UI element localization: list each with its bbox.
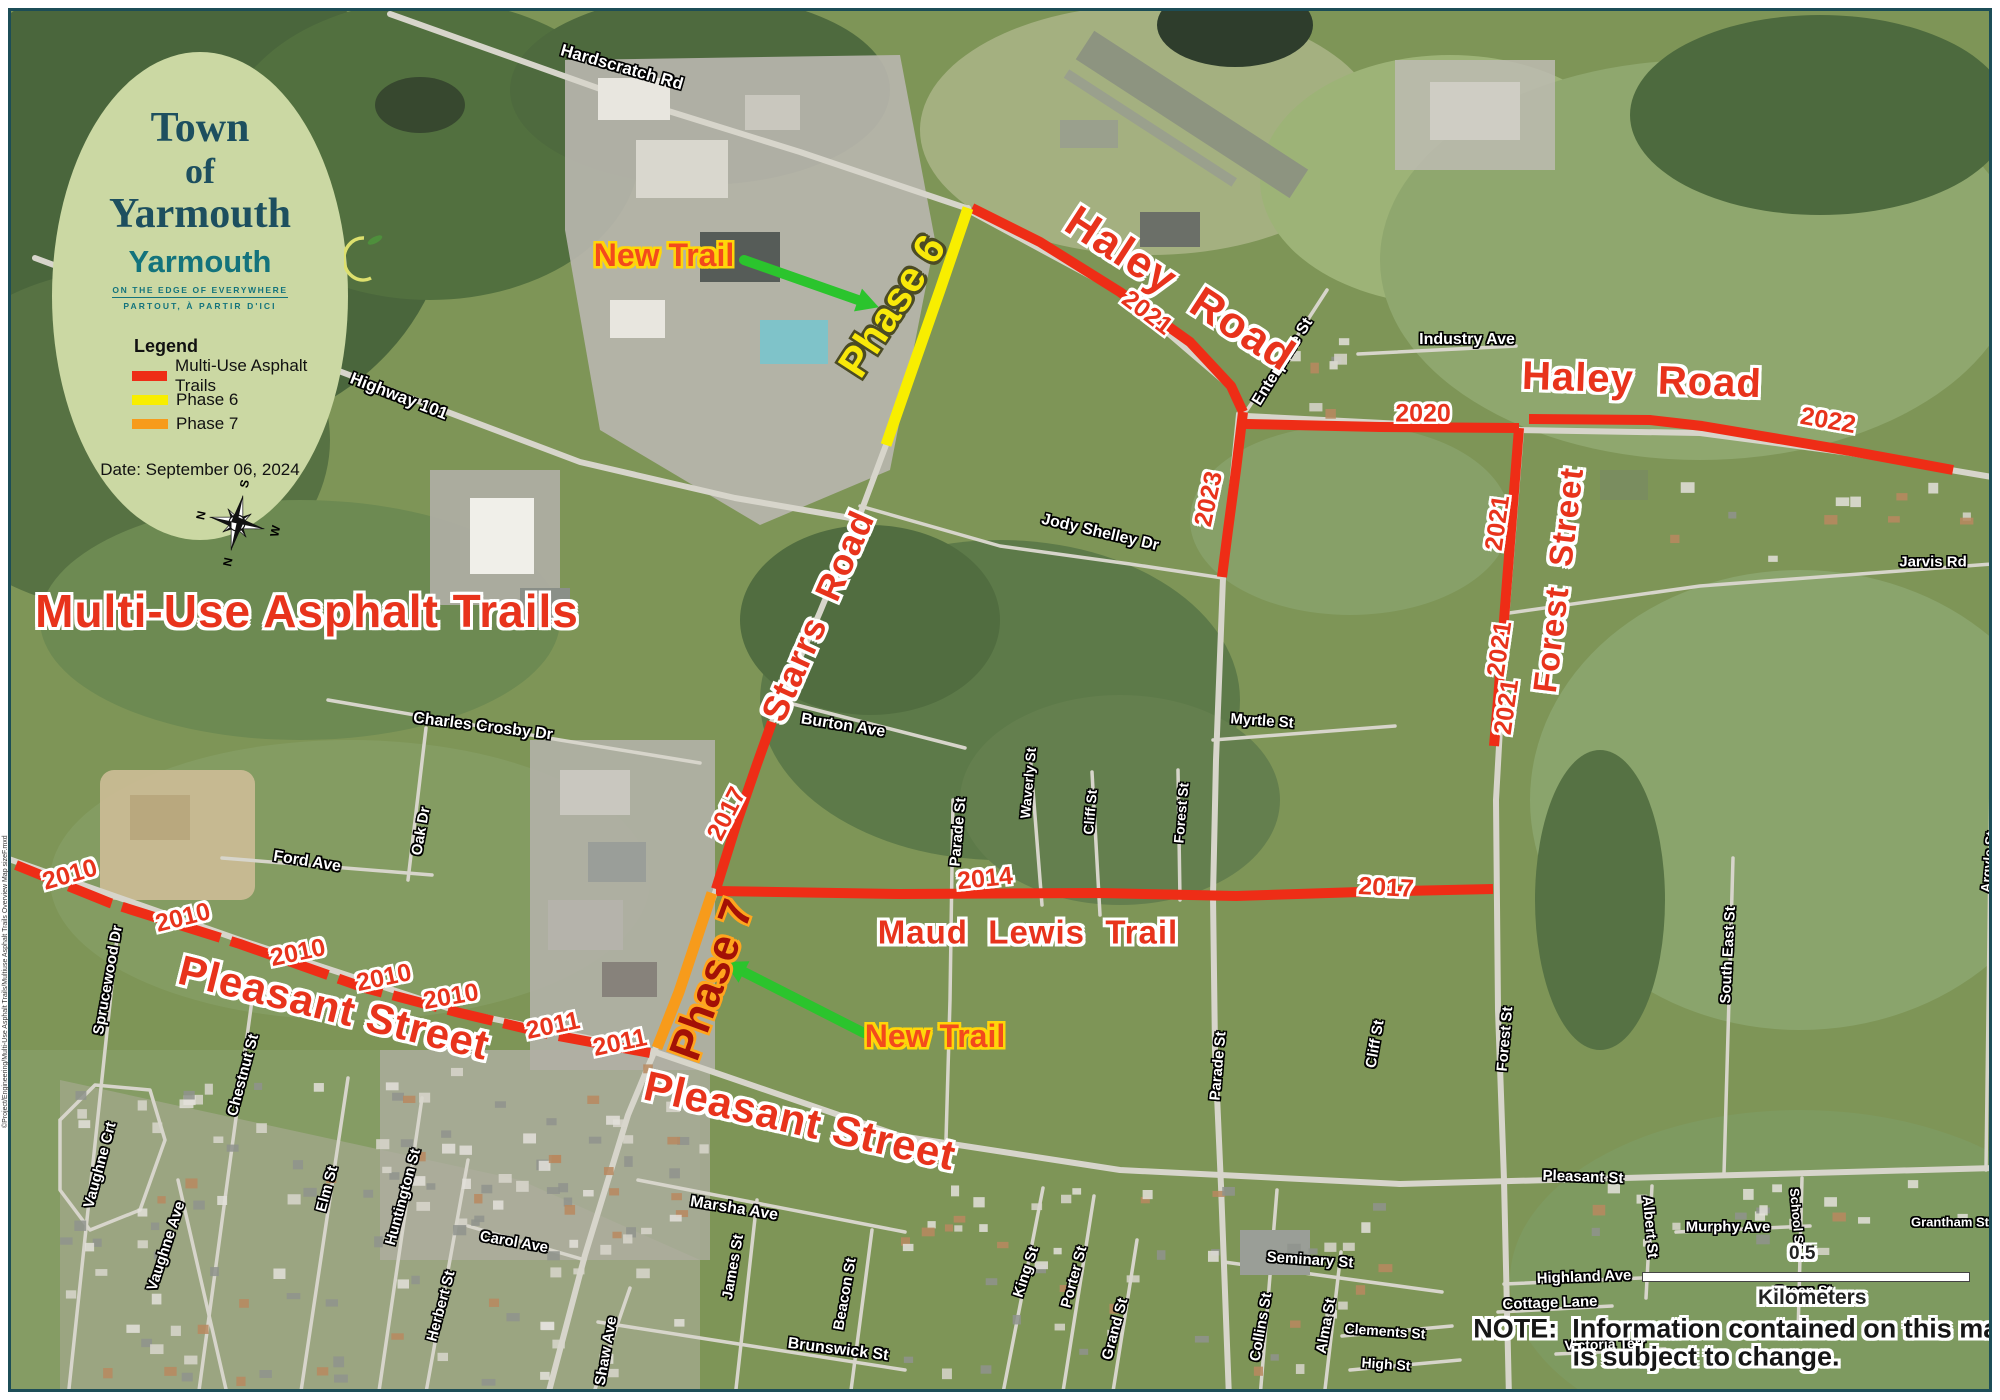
legend-item: Multi-Use Asphalt Trails xyxy=(132,364,348,388)
year-label: 2010 xyxy=(354,960,414,996)
street-label: Industry Ave xyxy=(1419,332,1515,348)
legend-swatch xyxy=(132,395,168,405)
street-label: Collins St xyxy=(1248,1292,1275,1363)
big-red-label: Starrs Road xyxy=(756,505,881,726)
legend-items: Multi-Use Asphalt TrailsPhase 6Phase 7 xyxy=(132,364,348,436)
phase7-label: Phase 7 xyxy=(663,894,761,1065)
legend-item-label: Phase 7 xyxy=(176,414,238,434)
newtrail-label: New Trail xyxy=(865,1020,1006,1052)
scale-bar xyxy=(1642,1272,1970,1282)
yarmouth-trails-map-page: { "legend_card": { "title_line1": "Town"… xyxy=(0,0,2000,1400)
yarmouth-logo: Yarmouth ON THE EDGE OF EVERYWHERE PARTO… xyxy=(52,244,348,314)
legend-swatch xyxy=(132,419,168,429)
legend-item: Phase 7 xyxy=(132,412,348,436)
compass-s: S xyxy=(237,478,252,489)
year-label: 2020 xyxy=(1395,402,1451,427)
legend-card: Town of Yarmouth Yarmouth ON THE EDGE OF… xyxy=(52,52,348,540)
street-label: Highway 101 xyxy=(348,370,450,423)
year-label: 2010 xyxy=(40,855,100,894)
card-title-line3: Yarmouth xyxy=(52,190,348,238)
street-label: Vaughne Ave xyxy=(144,1199,187,1292)
street-label: Pleasant St xyxy=(1542,1168,1623,1186)
year-label: 2011 xyxy=(524,1008,582,1044)
street-label: High St xyxy=(1361,1355,1411,1372)
year-label: 2022 xyxy=(1798,404,1857,438)
big-red-label: Haley Road xyxy=(1521,356,1762,404)
legend-swatch xyxy=(132,371,167,381)
compass-n2: N xyxy=(220,556,235,567)
street-label: Ford Ave xyxy=(272,849,342,875)
logo-tagline-en: ON THE EDGE OF EVERYWHERE xyxy=(112,285,287,298)
big-red-label: Multi-Use Asphalt Trails xyxy=(35,588,579,634)
street-label: Burton Ave xyxy=(800,711,887,740)
street-label: Grand St xyxy=(1100,1296,1131,1361)
street-label: Cliff St xyxy=(1363,1019,1386,1069)
street-label: Charles Crosby Dr xyxy=(412,710,553,743)
street-label: Herbert St xyxy=(424,1269,457,1343)
street-label: Myrtle St xyxy=(1230,711,1294,730)
phase6-label: Phase 6 xyxy=(831,228,953,384)
street-label: Grantham St xyxy=(1911,1216,1989,1229)
street-label: Seminary St xyxy=(1266,1249,1354,1270)
compass-w: W xyxy=(267,523,283,538)
year-label: 2010 xyxy=(268,935,328,971)
street-label: Jarvis Rd xyxy=(1899,555,1967,570)
compass-rose-icon: N S W N xyxy=(182,468,292,578)
card-title-line1: Town xyxy=(52,104,348,152)
year-label: 2017 xyxy=(1358,874,1415,902)
street-label: Vaughne Crt xyxy=(81,1120,118,1209)
year-label: 2010 xyxy=(153,899,213,937)
street-label: Sprucewood Dr xyxy=(91,924,125,1036)
logo-wordmark: Yarmouth xyxy=(129,244,272,279)
note-line2: is subject to change. xyxy=(1572,1342,1839,1373)
street-label: Huntington St xyxy=(383,1147,423,1247)
street-label: Cottage Lane xyxy=(1502,1294,1597,1312)
street-label: Cliff St xyxy=(1081,789,1099,835)
street-label: Porter St xyxy=(1059,1244,1090,1309)
street-label: Beacon St xyxy=(831,1257,859,1332)
street-label: James St xyxy=(720,1233,746,1300)
compass-n: N xyxy=(193,510,208,521)
street-label: Clements St xyxy=(1344,1321,1426,1341)
card-title-line2: of xyxy=(52,150,348,192)
street-label: School St xyxy=(1788,1188,1806,1249)
file-path-credit: ©Project/Engineering/Multi-Use Asphalt T… xyxy=(2,835,9,1128)
year-label: 2023 xyxy=(1191,469,1227,529)
street-label: King St xyxy=(1011,1245,1041,1300)
street-label: Marsha Ave xyxy=(689,1194,779,1224)
street-label: Brunswick St xyxy=(787,1336,890,1364)
scale-unit: Kilometers xyxy=(1758,1286,1867,1310)
legend-item-label: Phase 6 xyxy=(176,390,238,410)
logo-tagline-fr: PARTOUT, À PARTIR D'ICI xyxy=(52,301,348,311)
street-label: Forest St xyxy=(1495,1006,1516,1072)
newtrail-label: New Trail xyxy=(594,239,735,271)
big-red-label: Haley Road xyxy=(1058,199,1302,379)
street-label: Hardscratch Rd xyxy=(559,41,685,92)
year-label: 2017 xyxy=(703,784,751,845)
street-label: Jody Shelley Dr xyxy=(1040,512,1161,555)
street-label: Alma St xyxy=(1314,1297,1338,1355)
street-label: Highland Ave xyxy=(1536,1268,1631,1286)
legend-title: Legend xyxy=(134,336,198,357)
note-line1: NOTE: Information contained on this map xyxy=(1473,1314,2000,1345)
year-label: 2021 xyxy=(1491,678,1523,737)
street-label: Forest St xyxy=(1171,782,1190,844)
street-label: Waverly St xyxy=(1018,747,1038,819)
big-red-label: Forest Street xyxy=(1528,465,1588,694)
street-label: Murphy Ave xyxy=(1686,1220,1771,1235)
big-red-label: Pleasant Street xyxy=(640,1065,960,1178)
street-label: Carol Ave xyxy=(479,1229,549,1256)
year-label: 2014 xyxy=(956,864,1014,895)
leaf-icon xyxy=(344,234,386,286)
street-label: Parade St xyxy=(948,797,969,867)
street-label: Oak Dr xyxy=(409,805,432,856)
street-label: Elm St xyxy=(314,1165,341,1214)
big-red-label: Maud Lewis Trail xyxy=(878,916,1178,949)
street-label: Argyle St xyxy=(1978,831,1997,893)
year-label: 2010 xyxy=(421,980,480,1014)
street-label: South East St xyxy=(1718,906,1738,1004)
street-label: Chestnut St xyxy=(225,1032,261,1117)
street-label: Shaw Ave xyxy=(593,1315,620,1386)
year-label: 2011 xyxy=(591,1025,649,1061)
year-label: 2021 xyxy=(1484,620,1516,679)
scale-value: 0.5 xyxy=(1789,1243,1815,1265)
year-label: 2021 xyxy=(1482,494,1514,553)
street-label: Parade St xyxy=(1208,1031,1229,1101)
street-label: Albert St xyxy=(1640,1195,1660,1259)
